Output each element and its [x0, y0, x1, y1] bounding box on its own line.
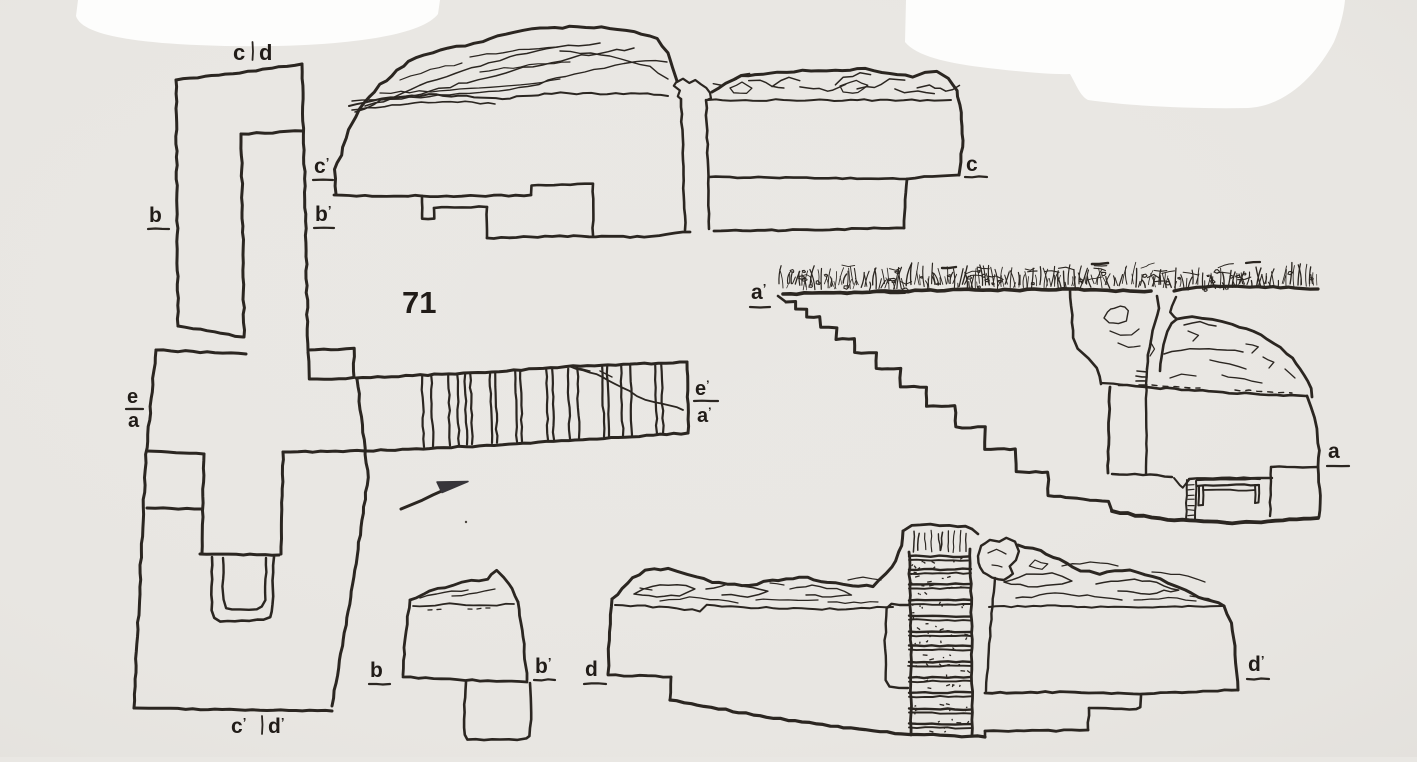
- svg-text:d: d: [585, 658, 598, 681]
- svg-text:b: b: [149, 204, 162, 227]
- svg-text:c: c: [233, 40, 245, 65]
- svg-text:d: d: [259, 40, 272, 65]
- svg-text:e: e: [127, 386, 138, 408]
- svg-text:c: c: [966, 153, 978, 176]
- svg-text:b: b: [370, 659, 383, 682]
- svg-text:a: a: [1328, 440, 1340, 463]
- svg-text:a: a: [128, 410, 140, 432]
- svg-text:71: 71: [402, 285, 436, 320]
